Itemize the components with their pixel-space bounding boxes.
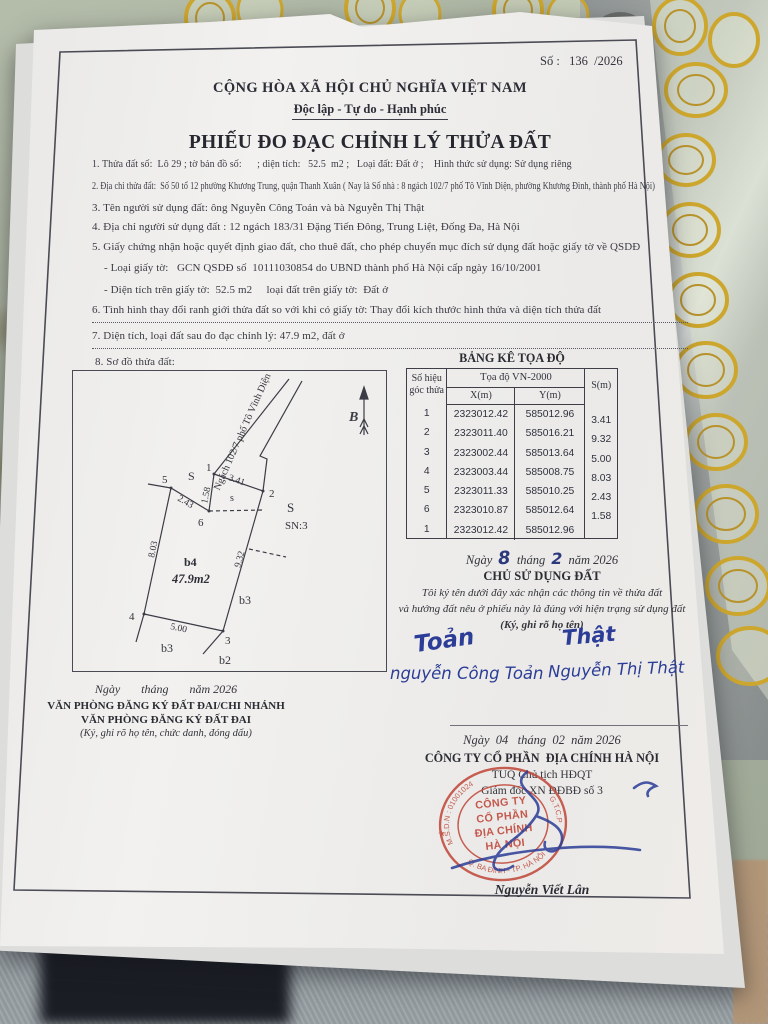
motto-underline: [292, 119, 448, 120]
s-value: 8.03: [585, 473, 617, 484]
parcel-sketch: B 1 2 3 4 5 6 3.41 1.58 2.43 8.03 9.32 5…: [73, 371, 386, 671]
s-value: 2.43: [585, 492, 617, 503]
item-3: 3. Tên người sử dụng đất: ông Nguyễn Côn…: [92, 202, 424, 214]
edge-5-6-length: 2.43: [176, 494, 196, 511]
owner-date-pre: Ngày: [466, 553, 492, 568]
parcel-sketch-box: B 1 2 3 4 5 6 3.41 1.58 2.43 8.03 9.32 5…: [72, 370, 387, 672]
x-header: X(m): [447, 388, 514, 405]
vertex-4: 4: [129, 611, 135, 623]
dashed-line-2: [249, 549, 286, 557]
director-signature-stroke: [428, 742, 690, 888]
dotted-rule-2: [92, 348, 688, 349]
y-value: 585012.64: [515, 501, 584, 520]
x-value: 2323011.33: [447, 482, 514, 501]
edge-4-5-length: 8.03: [147, 540, 160, 559]
registry-office-block: Ngày tháng năm 2026 VĂN PHÒNG ĐĂNG KÝ ĐẤ…: [30, 682, 302, 739]
s-header: S(m): [585, 369, 617, 403]
item-8-label: 8. Sơ đồ thửa đất:: [95, 356, 175, 368]
coordinate-table-title: BẢNG KÊ TỌA ĐỘ: [406, 351, 618, 366]
vertex-1: 1: [206, 462, 212, 474]
corner-no: 4: [407, 462, 446, 481]
y-value: 585013.64: [515, 444, 584, 463]
street-edge-right: [260, 381, 302, 491]
owner-note-2: và hướng đất nêu ở phiếu này là đúng với…: [392, 603, 692, 615]
item-5: 5. Giấy chứng nhận hoặc quyết định giao …: [92, 241, 640, 253]
street-name-label: Ngách 102/7 phố Tô Vĩnh Diện: [212, 372, 274, 492]
signature-swash-2: Thật: [561, 622, 616, 651]
boundary-extension-4: [136, 614, 144, 642]
registry-note: (Ký, ghi rõ họ tên, chức danh, đóng dấu): [30, 728, 302, 739]
corner-no: 1: [407, 520, 446, 539]
x-value: 2323002.44: [447, 444, 514, 463]
dashed-line-1: [209, 510, 264, 511]
s-value: 3.41: [585, 415, 617, 426]
owner-date-line: Ngày 8 tháng 2 năm 2026: [392, 548, 692, 569]
y-column: Y(m) 585012.96 585016.21 585013.64 58500…: [514, 388, 584, 540]
s-label-3: S: [287, 500, 294, 515]
vertex-5: 5: [162, 474, 168, 486]
neighbor-b3-right: b3: [239, 593, 251, 607]
y-value: 585008.75: [515, 463, 584, 482]
north-arrow-icon: [360, 387, 368, 435]
registry-date-line: Ngày tháng năm 2026: [30, 682, 302, 697]
item-7: 7. Diện tích, loại đất sau đo đạc chỉnh …: [92, 330, 345, 342]
s-value: 9.32: [585, 434, 617, 445]
handwritten-month: 2: [551, 549, 562, 568]
y-value: 585012.96: [515, 405, 584, 424]
y-value: 585012.96: [515, 521, 584, 540]
vertex-2: 2: [269, 488, 275, 500]
item-2: 2. Địa chỉ thửa đất: Số 50 tổ 12 phường …: [92, 181, 655, 192]
parcel-area: 47.9m2: [171, 572, 210, 586]
national-motto: Độc lập - Tự do - Hạnh phúc: [90, 102, 650, 117]
registry-line-1: VĂN PHÒNG ĐĂNG KÝ ĐẤT ĐAI/CHI NHÁNH: [30, 700, 302, 712]
item-6: 6. Tình hình thay đổi ranh giới thửa đất…: [92, 304, 601, 316]
page-title: PHIẾU ĐO ĐẠC CHỈNH LÝ THỬA ĐẤT: [90, 132, 650, 154]
item-5a: - Loại giấy tờ: GCN QSDĐ số 10111030854 …: [92, 262, 541, 274]
corner-header-line1: Số hiệu: [407, 373, 446, 385]
corner-no: 3: [407, 443, 446, 462]
corner-no: 2: [407, 423, 446, 442]
y-value: 585010.25: [515, 482, 584, 501]
document-header: CỘNG HÒA XÃ HỘI CHỦ NGHĨA VIỆT NAM Độc l…: [90, 80, 650, 154]
north-label: B: [348, 410, 358, 425]
owner-date-mid: tháng: [517, 553, 545, 568]
s-value: 1.58: [585, 511, 617, 522]
s-label-1: S: [188, 469, 195, 483]
edge-3-4-length: 5.00: [169, 622, 188, 635]
x-value: 2323010.87: [447, 501, 514, 520]
x-value: 2323012.42: [447, 405, 514, 424]
coord-system-header: Tọa độ VN-2000: [447, 369, 584, 388]
doc-number: Số : 136 /2026: [540, 54, 623, 69]
neighbor-b3-bottom: b3: [161, 641, 173, 655]
edge-2-3-length: 9.32: [233, 550, 247, 569]
x-value: 2323003.44: [447, 463, 514, 482]
x-value: 2323012.42: [447, 521, 514, 540]
corner-number-column: Số hiệu góc thửa 1 2 3 4 5 6 1: [407, 369, 447, 538]
boundary-extension-5: [148, 484, 171, 488]
corner-no: 1: [407, 404, 446, 423]
owner-note-1: Tôi ký tên dưới đây xác nhận các thông t…: [392, 587, 692, 599]
item-1: 1. Thửa đất số: Lô 29 ; tờ bản đồ số: ; …: [92, 158, 572, 170]
s-label-2: s: [230, 493, 234, 504]
signature-name-1: nguyễn Công Toản: [390, 664, 544, 683]
s-value: 5.00: [585, 454, 617, 465]
parcel-code: b4: [184, 555, 197, 569]
neighbor-b2: b2: [219, 653, 231, 667]
handwritten-day: 8: [498, 548, 512, 570]
owner-heading: CHỦ SỬ DỤNG ĐẤT: [392, 569, 692, 584]
corner-no: 5: [407, 481, 446, 500]
photo-scene: Số : 136 /2026 CỘNG HÒA XÃ HỘI CHỦ NGHĨA…: [0, 0, 768, 1024]
house-number-label: SN:3: [285, 520, 308, 532]
owner-date-post: năm 2026: [568, 553, 618, 568]
national-title: CỘNG HÒA XÃ HỘI CHỦ NGHĨA VIỆT NAM: [90, 80, 650, 97]
company-separator-line: [450, 725, 688, 726]
vertex-6: 6: [198, 517, 204, 529]
coordinate-table: Số hiệu góc thửa 1 2 3 4 5 6 1 Tọa độ VN…: [406, 368, 618, 539]
boundary-extension-3: [203, 631, 223, 654]
corner-header-line2: góc thửa: [407, 385, 446, 397]
vertex-3: 3: [225, 635, 231, 647]
x-value: 2323011.40: [447, 424, 514, 443]
y-header: Y(m): [515, 388, 584, 405]
segment-length-column: S(m) 3.41 9.32 5.00 8.03 2.43 1.58: [585, 369, 617, 538]
corner-no: 6: [407, 500, 446, 519]
x-column: X(m) 2323012.42 2323011.40 2323002.44 23…: [447, 388, 514, 540]
registry-line-2: VĂN PHÒNG ĐĂNG KÝ ĐẤT ĐAI: [30, 714, 302, 726]
item-4: 4. Địa chỉ người sử dụng đất : 12 ngách …: [92, 221, 520, 233]
coordinates-column-group: Tọa độ VN-2000 X(m) 2323012.42 2323011.4…: [447, 369, 585, 538]
edge-6-1-length: 1.58: [200, 486, 213, 505]
item-5b: - Diện tích trên giấy tờ: 52.5 m2 loại đ…: [92, 284, 388, 296]
edge-1-2-length: 3.41: [227, 473, 246, 488]
dotted-rule-1: [92, 322, 688, 323]
y-value: 585016.21: [515, 424, 584, 443]
